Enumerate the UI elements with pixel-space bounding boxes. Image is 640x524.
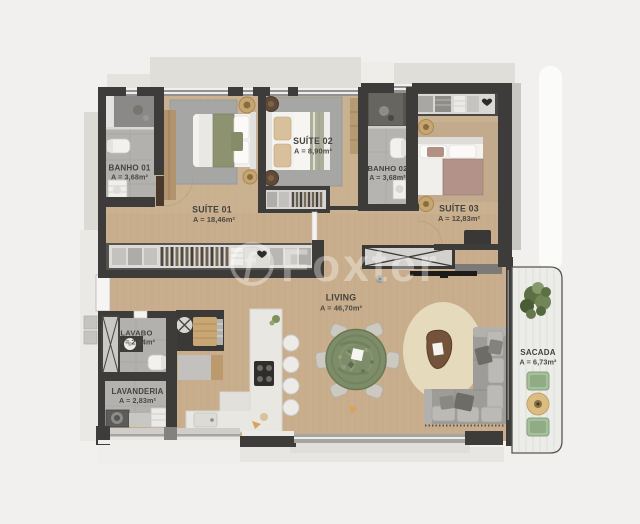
svg-text:LIVING: LIVING xyxy=(326,293,357,303)
svg-text:A = 3,68m²: A = 3,68m² xyxy=(369,174,406,182)
svg-text:A = 2,83m²: A = 2,83m² xyxy=(119,396,156,405)
svg-text:SACADA: SACADA xyxy=(520,348,555,357)
svg-text:A = 12,83m²: A = 12,83m² xyxy=(438,214,481,223)
svg-text:Foxter: Foxter xyxy=(281,239,440,291)
svg-text:BANHO 01: BANHO 01 xyxy=(108,164,150,173)
svg-text:LAVANDERIA: LAVANDERIA xyxy=(112,387,164,396)
svg-text:SUÍTE 03: SUÍTE 03 xyxy=(439,204,479,214)
svg-text:A = 3,68m²: A = 3,68m² xyxy=(111,173,148,182)
svg-text:ƒ: ƒ xyxy=(241,246,260,284)
svg-text:BANHO 02: BANHO 02 xyxy=(368,164,408,173)
svg-text:SUÍTE 02: SUÍTE 02 xyxy=(293,136,333,146)
svg-text:A = 2,14m²: A = 2,14m² xyxy=(118,338,155,347)
svg-text:A = 8,90m²: A = 8,90m² xyxy=(294,147,332,156)
svg-text:A = 18,46m²: A = 18,46m² xyxy=(193,215,236,224)
svg-text:LAVABO: LAVABO xyxy=(120,329,152,338)
svg-text:A = 6,73m²: A = 6,73m² xyxy=(520,358,557,367)
svg-text:SUÍTE 01: SUÍTE 01 xyxy=(192,205,232,215)
svg-text:A = 46,70m²: A = 46,70m² xyxy=(320,304,363,313)
